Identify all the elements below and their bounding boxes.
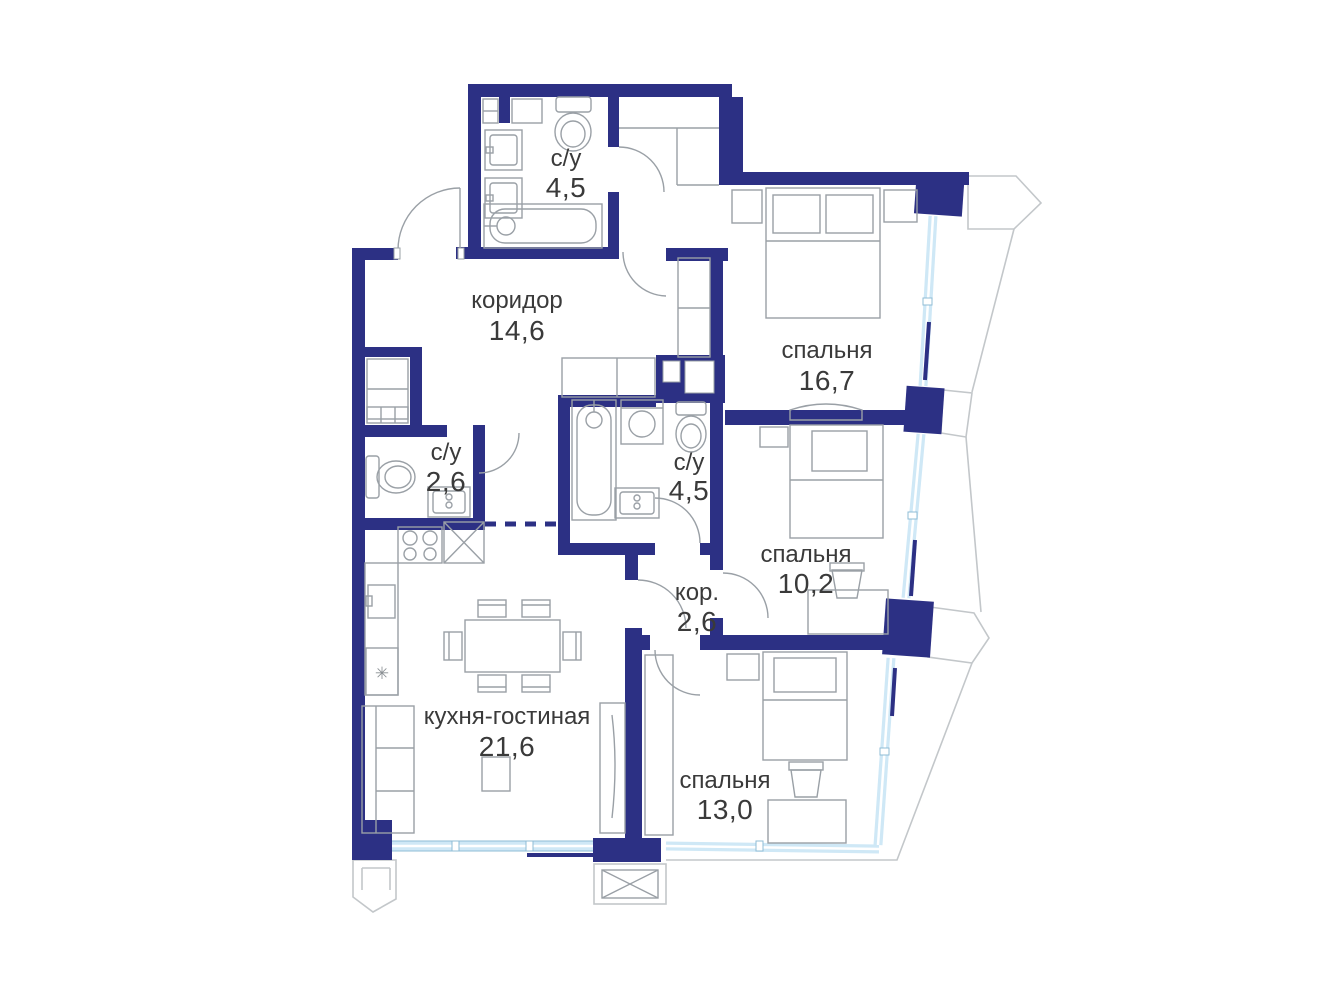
entrance-door (394, 188, 464, 259)
room-bathroom-mid: с/у 4,5 (572, 400, 709, 520)
nightstand (760, 427, 788, 447)
bathtub-icon (572, 400, 616, 520)
fridge-icon: ✳ (366, 648, 398, 695)
room-label-area: 2,6 (677, 606, 717, 637)
nightstand (727, 654, 759, 680)
floor-plan-drawing: с/у 4,5 коридор 14,6 (0, 0, 1333, 1000)
sink-icon (485, 178, 522, 218)
kitchen-sink-icon (366, 585, 395, 618)
room-bedroom-2: спальня 10,2 (760, 425, 888, 634)
room-bedroom-3: спальня 13,0 (645, 652, 847, 843)
toilet-icon (676, 402, 706, 452)
dining-table (444, 600, 581, 692)
room-label-area: 16,7 (799, 365, 856, 396)
nightstand (884, 190, 917, 222)
sink-icon (485, 130, 522, 170)
bed-icon (790, 425, 883, 538)
room-label-area: 10,2 (778, 568, 835, 599)
room-hall-small: кор. 2,6 (675, 579, 719, 637)
hall-wardrobe (619, 128, 719, 185)
corridor-wardrobe-strip (562, 358, 655, 397)
sink-icon (615, 488, 659, 518)
room-label-area: 2,6 (426, 466, 466, 497)
bathtub-icon (484, 204, 602, 248)
room-bedroom-1: спальня 16,7 (732, 188, 917, 420)
room-label-area: 14,6 (489, 315, 546, 346)
room-label-name: с/у (431, 439, 462, 466)
room-label-name: спальня (679, 767, 770, 794)
room-label-area: 4,5 (546, 172, 586, 203)
room-label-name: с/у (674, 449, 705, 476)
corridor-wardrobe (678, 258, 710, 357)
room-label-name: кухня-гостиная (424, 703, 591, 730)
room-label-area: 4,5 (669, 475, 709, 506)
sofa-icon (362, 706, 414, 833)
svg-text:✳: ✳ (375, 664, 389, 683)
toilet-icon (555, 97, 591, 151)
tall-wardrobe (600, 703, 625, 833)
room-label-name: спальня (781, 337, 872, 364)
bed-icon (763, 652, 847, 760)
room-kitchen-living: ✳ кухня-гостиная 21 (362, 522, 625, 833)
window-kitchen (392, 841, 593, 851)
toilet-icon (366, 456, 415, 498)
desk-icon (768, 762, 846, 843)
room-wc-small: с/у 2,6 (366, 439, 470, 517)
stove-icon (398, 527, 442, 563)
room-label-area: 21,6 (479, 731, 536, 762)
closet-shelves (367, 359, 408, 423)
room-label-name: с/у (551, 145, 582, 172)
room-label-name: кор. (675, 579, 719, 606)
coffee-table (482, 757, 510, 791)
window-bedroom-3-side (878, 658, 891, 845)
room-label-name: коридор (471, 287, 563, 314)
floor-plan-page: с/у 4,5 коридор 14,6 (0, 0, 1333, 1000)
room-label-area: 13,0 (697, 794, 754, 825)
room-label-name: спальня (760, 541, 851, 568)
nightstand (732, 190, 762, 223)
bed-icon (766, 188, 880, 318)
balcony-shaft (594, 864, 666, 904)
shelf-icon (483, 99, 542, 123)
